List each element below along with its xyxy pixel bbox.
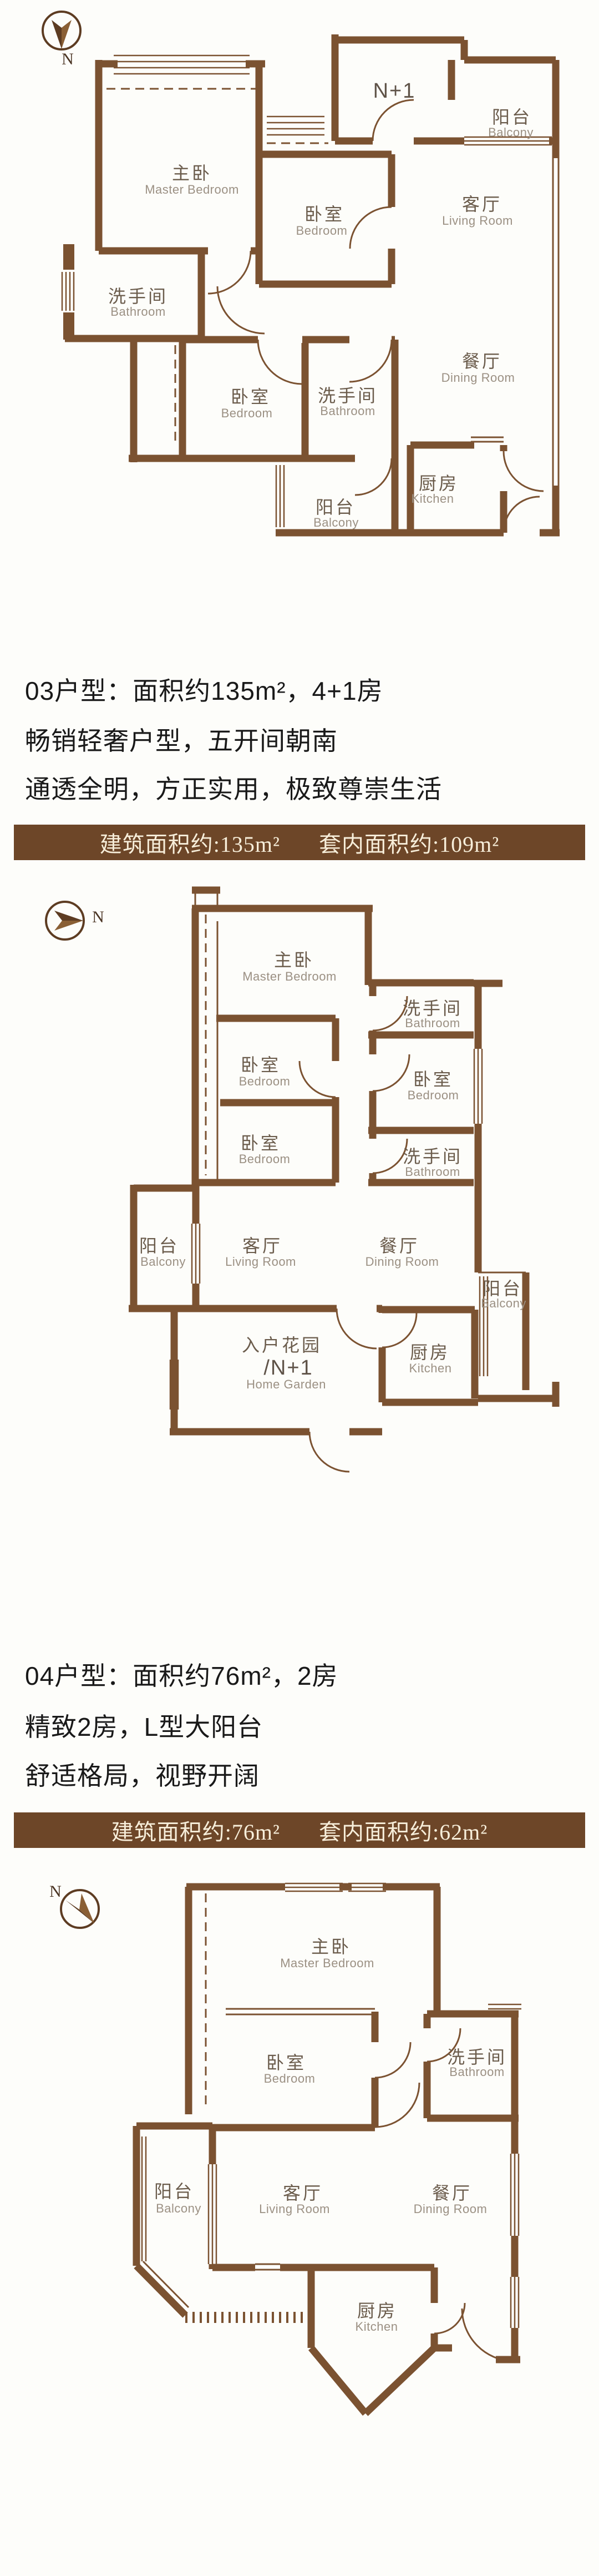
unit03-built-area: 建筑面积约:135m²	[100, 826, 280, 858]
room-label-bedroom-top-en: Bedroom	[296, 224, 348, 238]
room-label-bathroom-mid-en: Bathroom	[320, 404, 375, 418]
room-label-bedroom: 卧室	[266, 2053, 306, 2073]
room-label-bathroom-left-en: Bathroom	[110, 305, 165, 319]
unit03-area-banner: 建筑面积约:135m² 套内面积约:109m²	[14, 825, 585, 860]
room-label-balcony-left: 阳台	[139, 1236, 179, 1256]
room-label-balcony-en: Balcony	[156, 2201, 201, 2215]
floorplan-unit04: N	[0, 1881, 599, 2576]
room-label-master: 主卧	[172, 163, 212, 183]
room-label-bathroom-left: 洗手间	[108, 286, 168, 306]
unit03-heading-line3: 通透全明，方正实用，极致尊崇生活	[25, 775, 442, 804]
compass-icon: N	[49, 1882, 99, 1928]
room-label-bathroom-mid: 洗手间	[403, 1146, 463, 1166]
unit03-heading-line1: 03户型：面积约135m²，4+1房	[25, 676, 383, 705]
room-label-balcony-top: 阳台	[492, 107, 532, 127]
room-label-dining: 餐厅	[462, 351, 502, 371]
room-label-dining-en: Dining Room	[414, 2202, 488, 2216]
room-label-kitchen: 厨房	[410, 1342, 450, 1362]
room-label-balcony-bottom-en: Balcony	[313, 516, 359, 529]
room-label-master: 主卧	[274, 950, 314, 970]
compass-icon: N	[43, 12, 80, 68]
room-label-living-en: Living Room	[225, 1255, 296, 1269]
room-label-balcony-left-en: Balcony	[140, 1255, 186, 1269]
room-label-kitchen: 厨房	[419, 473, 459, 493]
room-label-bedroom-b: 卧室	[241, 1133, 281, 1153]
room-label-balcony-top-en: Balcony	[488, 125, 534, 139]
room-label-kitchen-en: Kitchen	[409, 1361, 452, 1375]
room-label-garden: 入户花园	[242, 1335, 322, 1355]
unit04-heading-line2: 精致2房，L型大阳台	[25, 1713, 263, 1741]
room-label-dining-en: Dining Room	[441, 371, 515, 385]
room-label-bathroom-top-en: Bathroom	[405, 1016, 460, 1030]
unit03-heading-line2: 畅销轻奢户型，五开间朝南	[25, 726, 338, 755]
room-label-bedroom-right-en: Bedroom	[408, 1088, 459, 1102]
room-label-dining-en: Dining Room	[366, 1255, 439, 1269]
unit04-inner-area: 套内面积约:62m²	[319, 1814, 488, 1846]
room-label-living: 客厅	[462, 194, 502, 214]
room-label-bathroom: 洗手间	[447, 2047, 507, 2067]
room-label-bedroom-a: 卧室	[241, 1055, 281, 1075]
room-label-living-en: Living Room	[259, 2202, 330, 2216]
floorplan-unit03b: N	[0, 886, 599, 1607]
room-label-balcony-right: 阳台	[483, 1279, 522, 1299]
room-label-kitchen: 厨房	[357, 2301, 397, 2321]
room-label-dining: 餐厅	[379, 1236, 419, 1256]
room-label-balcony-bottom: 阳台	[316, 497, 356, 517]
room-label-bathroom-top: 洗手间	[403, 998, 463, 1018]
compass-n-label: N	[62, 50, 74, 68]
room-label-bedroom-mid-en: Bedroom	[221, 406, 273, 420]
unit04-heading-line1: 04户型：面积约76m²，2房	[25, 1661, 338, 1690]
room-label-living: 客厅	[283, 2183, 323, 2203]
room-label-bathroom-en: Bathroom	[449, 2065, 504, 2079]
room-label-nplus1: N+1	[373, 79, 416, 103]
room-label-bedroom-mid: 卧室	[231, 387, 271, 407]
floorplan-unit03: N	[0, 0, 599, 627]
unit03-inner-area: 套内面积约:109m²	[319, 826, 499, 858]
walls	[129, 890, 556, 1432]
compass-n-label: N	[49, 1882, 62, 1901]
compass-n-label: N	[92, 908, 104, 926]
room-label-balcony-right-en: Balcony	[481, 1296, 526, 1310]
room-label-master-en: Master Bedroom	[242, 969, 337, 983]
room-label-living-en: Living Room	[442, 214, 513, 228]
room-label-bathroom-mid-en: Bathroom	[405, 1165, 460, 1179]
room-label-bedroom-b-en: Bedroom	[239, 1152, 291, 1166]
room-label-kitchen-en: Kitchen	[356, 2320, 398, 2333]
room-label-kitchen-en: Kitchen	[412, 492, 454, 506]
unit04-area-banner: 建筑面积约:76m² 套内面积约:62m²	[14, 1812, 585, 1848]
unit04-heading-line3: 舒适格局，视野开阔	[25, 1761, 260, 1790]
room-label-garden-tag: /N+1	[263, 1356, 313, 1380]
room-label-master-en: Master Bedroom	[145, 183, 239, 196]
room-label-bedroom-top: 卧室	[304, 204, 344, 224]
room-label-master: 主卧	[311, 1937, 351, 1957]
room-label-dining: 餐厅	[432, 2183, 472, 2203]
walls	[62, 34, 560, 533]
unit04-built-area: 建筑面积约:76m²	[111, 1814, 280, 1846]
room-label-bedroom-a-en: Bedroom	[239, 1074, 291, 1088]
room-labels: 主卧 Master Bedroom 卧室 Bedroom 洗手间 Bathroo…	[154, 1937, 507, 2333]
room-label-master-en: Master Bedroom	[280, 1956, 374, 1970]
room-label-bedroom-right: 卧室	[413, 1069, 453, 1089]
room-label-bathroom-mid: 洗手间	[318, 386, 378, 406]
room-label-balcony: 阳台	[154, 2181, 194, 2201]
compass-icon: N	[46, 902, 104, 940]
room-label-bedroom-en: Bedroom	[264, 2072, 316, 2085]
room-label-living: 客厅	[242, 1236, 282, 1256]
flyer-page: N	[0, 0, 599, 2576]
room-label-garden-en: Home Garden	[246, 1377, 326, 1391]
